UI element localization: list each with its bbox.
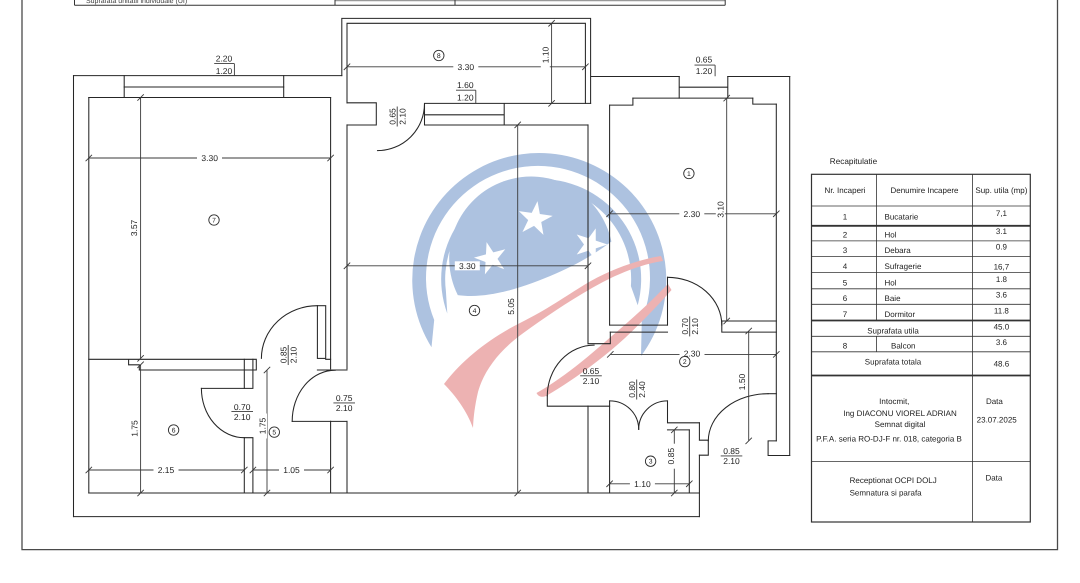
- svg-text:1.75: 1.75: [258, 417, 268, 434]
- svg-text:1.20: 1.20: [696, 66, 713, 76]
- svg-text:2.10: 2.10: [398, 108, 408, 125]
- svg-text:2.10: 2.10: [690, 318, 700, 335]
- svg-text:0.65: 0.65: [696, 54, 713, 64]
- svg-text:7,1: 7,1: [996, 209, 1008, 218]
- svg-text:1.60: 1.60: [457, 80, 474, 90]
- svg-text:3.30: 3.30: [459, 261, 476, 271]
- svg-text:3.30: 3.30: [458, 62, 475, 72]
- svg-text:2.30: 2.30: [684, 209, 701, 219]
- svg-text:0.85: 0.85: [666, 448, 676, 465]
- svg-text:0.70: 0.70: [680, 318, 690, 335]
- svg-text:0.75: 0.75: [336, 393, 353, 403]
- svg-text:Data: Data: [985, 474, 1002, 483]
- svg-text:45.0: 45.0: [994, 323, 1010, 332]
- svg-text:Nr. Incaperi: Nr. Incaperi: [825, 186, 866, 195]
- svg-text:Balcon: Balcon: [891, 341, 915, 350]
- svg-text:2.10: 2.10: [336, 403, 353, 413]
- svg-text:0.70: 0.70: [234, 402, 251, 412]
- svg-text:4: 4: [843, 262, 848, 271]
- svg-text:3.30: 3.30: [201, 153, 218, 163]
- svg-text:1.10: 1.10: [540, 46, 550, 63]
- svg-text:23.07.2025: 23.07.2025: [977, 416, 1018, 425]
- svg-text:2.20: 2.20: [216, 54, 233, 64]
- svg-text:1.05: 1.05: [283, 465, 300, 475]
- svg-text:1.10: 1.10: [634, 479, 651, 489]
- svg-text:Ing DIACONU VIOREL ADRIAN: Ing DIACONU VIOREL ADRIAN: [843, 409, 957, 418]
- svg-text:2.10: 2.10: [289, 346, 299, 363]
- svg-text:5: 5: [272, 430, 276, 437]
- svg-text:Recapitulatie: Recapitulatie: [830, 157, 878, 166]
- svg-text:Data: Data: [986, 397, 1003, 406]
- svg-text:2.40: 2.40: [637, 381, 647, 398]
- svg-text:0.80: 0.80: [627, 381, 637, 398]
- svg-text:Denumire Incapere: Denumire Incapere: [890, 186, 959, 195]
- svg-text:Hol: Hol: [885, 278, 897, 287]
- svg-text:3.57: 3.57: [129, 219, 139, 236]
- svg-text:Suprafata totala: Suprafata totala: [865, 358, 922, 367]
- svg-text:Hol: Hol: [885, 231, 897, 240]
- svg-text:6: 6: [172, 428, 176, 435]
- svg-text:4: 4: [473, 308, 477, 315]
- svg-text:7: 7: [212, 218, 216, 225]
- svg-text:1.50: 1.50: [737, 373, 747, 390]
- svg-text:11.8: 11.8: [994, 307, 1010, 316]
- svg-text:3.6: 3.6: [996, 338, 1008, 347]
- svg-text:2.10: 2.10: [723, 456, 740, 466]
- svg-text:Debara: Debara: [885, 246, 912, 255]
- svg-text:1.8: 1.8: [996, 275, 1008, 284]
- svg-text:0.65: 0.65: [583, 366, 600, 376]
- svg-text:Semnat digital: Semnat digital: [875, 420, 926, 429]
- svg-text:1: 1: [843, 213, 848, 222]
- svg-text:P.F.A. seria RO-DJ-F nr. 018,: P.F.A. seria RO-DJ-F nr. 018, categoria …: [816, 435, 962, 444]
- svg-text:3.1: 3.1: [996, 227, 1008, 236]
- svg-text:Intocmit,: Intocmit,: [879, 397, 909, 406]
- svg-text:5: 5: [843, 278, 848, 287]
- svg-text:2.10: 2.10: [583, 376, 600, 386]
- svg-text:16,7: 16,7: [994, 263, 1010, 272]
- svg-text:Baie: Baie: [885, 294, 902, 303]
- svg-text:0.85: 0.85: [279, 346, 289, 363]
- svg-text:2: 2: [683, 359, 687, 366]
- svg-text:1.75: 1.75: [129, 420, 139, 437]
- svg-text:1.20: 1.20: [457, 93, 474, 103]
- svg-text:Suprafata unitatii individuale: Suprafata unitatii individuale (UI): [86, 0, 187, 5]
- svg-text:2.15: 2.15: [158, 465, 175, 475]
- svg-text:3.10: 3.10: [715, 201, 725, 218]
- svg-text:6: 6: [843, 294, 848, 303]
- svg-text:Bucatarie: Bucatarie: [885, 213, 919, 222]
- svg-text:Sufragerie: Sufragerie: [885, 262, 922, 271]
- svg-text:8: 8: [843, 341, 848, 350]
- svg-text:48.6: 48.6: [994, 360, 1010, 369]
- svg-text:Suprafata utila: Suprafata utila: [867, 326, 919, 335]
- svg-text:2.10: 2.10: [234, 412, 251, 422]
- svg-text:Semnatura si parafa: Semnatura si parafa: [850, 489, 923, 498]
- svg-text:1.20: 1.20: [216, 66, 233, 76]
- svg-text:3: 3: [843, 246, 848, 255]
- svg-text:3.6: 3.6: [996, 290, 1008, 299]
- svg-text:0.9: 0.9: [996, 242, 1008, 251]
- svg-text:0.85: 0.85: [723, 446, 740, 456]
- svg-text:3: 3: [649, 459, 653, 466]
- svg-text:8: 8: [437, 53, 441, 60]
- svg-text:7: 7: [843, 310, 848, 319]
- svg-text:1: 1: [687, 171, 691, 178]
- svg-text:Dormitor: Dormitor: [885, 310, 916, 319]
- svg-text:2: 2: [843, 231, 848, 240]
- svg-text:5.05: 5.05: [506, 298, 516, 315]
- svg-text:Receptionat OCPI DOLJ: Receptionat OCPI DOLJ: [850, 476, 937, 485]
- svg-text:Sup. utila (mp): Sup. utila (mp): [975, 186, 1027, 195]
- svg-text:0.65: 0.65: [388, 108, 398, 125]
